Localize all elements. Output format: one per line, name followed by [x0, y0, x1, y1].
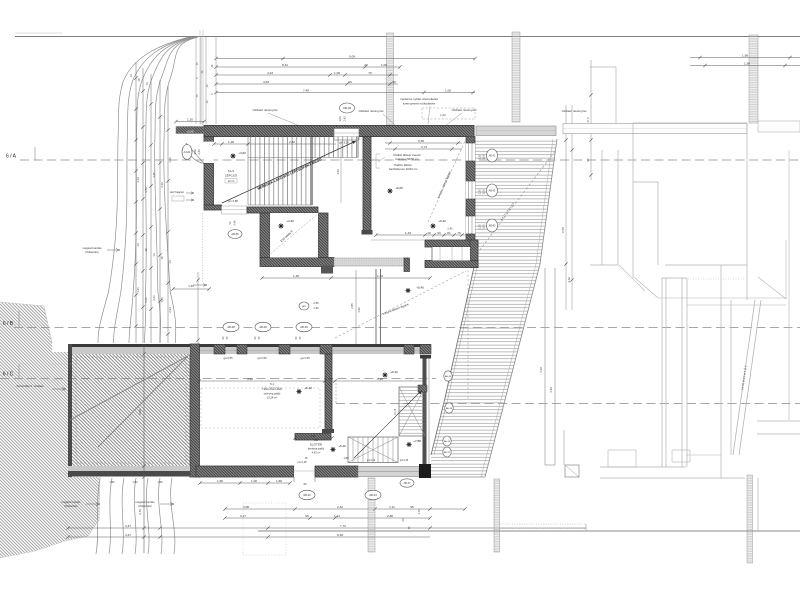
svg-text:4,22: 4,22: [247, 377, 253, 381]
svg-text:14: 14: [136, 243, 140, 247]
svg-text:1,90: 1,90: [357, 307, 361, 313]
svg-text:2,88: 2,88: [387, 514, 393, 518]
svg-text:1,00: 1,00: [381, 63, 387, 67]
svg-text:1,25: 1,25: [478, 154, 482, 160]
svg-text:kerámia padló: kerámia padló: [308, 447, 325, 451]
svg-text:1,11: 1,11: [389, 505, 395, 509]
svg-text:AJ-01: AJ-01: [184, 150, 191, 154]
svg-text:1,00: 1,00: [482, 189, 486, 195]
svg-text:1,20: 1,20: [187, 117, 193, 121]
svg-text:+5,88: +5,88: [186, 130, 194, 134]
svg-text:pm: pm: [302, 305, 306, 308]
svg-text:27,5: 27,5: [586, 117, 590, 123]
svg-text:AB-32: AB-32: [303, 493, 311, 497]
svg-text:4,47: 4,47: [125, 533, 131, 537]
svg-text:1,28: 1,28: [228, 140, 234, 144]
svg-text:70: 70: [328, 377, 332, 381]
svg-text:zárófödémen 20/20 cm: zárófödémen 20/20 cm: [389, 167, 418, 171]
svg-text:szennyezett működtetés: szennyezett működtetés: [403, 102, 436, 106]
svg-text:5,61: 5,61: [144, 297, 148, 303]
svg-text:1,00: 1,00: [482, 154, 486, 160]
svg-text:10: 10: [427, 231, 431, 235]
svg-text:4,20: 4,20: [336, 169, 340, 175]
svg-text:14: 14: [168, 260, 172, 264]
svg-text:+5,40: +5,40: [304, 386, 312, 390]
svg-text:1,50: 1,50: [157, 480, 163, 484]
svg-text:gw 0,55: gw 0,55: [300, 356, 310, 360]
svg-text:1,86: 1,86: [343, 456, 349, 460]
svg-text:1,41: 1,41: [136, 287, 140, 293]
svg-text:1,60: 1,60: [276, 479, 282, 483]
svg-text:AB-47: AB-47: [444, 451, 451, 454]
svg-text:HÁLÓSZOBA: HÁLÓSZOBA: [262, 386, 282, 391]
svg-text:2,85: 2,85: [313, 301, 319, 305]
svg-text:meglevő kerítés: meglevő kerítés: [83, 246, 103, 250]
svg-text:3,74: 3,74: [421, 145, 427, 149]
svg-text:AB-43: AB-43: [489, 225, 496, 228]
svg-text:Tervezőlap 2. szakasz: Tervezőlap 2. szakasz: [16, 384, 44, 388]
svg-text:20: 20: [364, 63, 368, 67]
svg-text:zöldtető növényzet: zöldtető növényzet: [358, 109, 383, 113]
svg-text:90: 90: [348, 80, 352, 84]
svg-text:AB-05: AB-05: [231, 232, 239, 236]
svg-text:9,36: 9,36: [337, 533, 343, 537]
svg-text:2,94: 2,94: [168, 307, 172, 313]
svg-text:AB-44: AB-44: [369, 493, 377, 497]
svg-text:1,45: 1,45: [152, 172, 156, 178]
svg-text:pm 0,30: pm 0,30: [400, 460, 409, 462]
svg-text:meglevő kerítés: meglevő kerítés: [62, 500, 82, 504]
svg-text:2,40: 2,40: [233, 220, 237, 226]
svg-text:1,25: 1,25: [478, 189, 482, 195]
svg-text:18: 18: [160, 256, 164, 260]
svg-text:AB-42: AB-42: [489, 190, 496, 193]
svg-text:8,31: 8,31: [282, 63, 288, 67]
svg-text:1,10: 1,10: [417, 509, 421, 515]
svg-text:AB-09: AB-09: [259, 325, 267, 329]
svg-text:3,35: 3,35: [418, 139, 424, 143]
svg-text:1,34: 1,34: [405, 231, 411, 235]
svg-text:1,00: 1,00: [445, 88, 451, 92]
svg-text:AB-46: AB-46: [444, 440, 451, 443]
svg-text:1,52: 1,52: [109, 480, 115, 484]
svg-text:+7,88: +7,88: [413, 439, 421, 443]
svg-text:70: 70: [368, 71, 372, 75]
svg-text:2,52: 2,52: [289, 140, 295, 144]
svg-text:pm 0,25: pm 0,25: [297, 461, 307, 464]
svg-text:93: 93: [437, 231, 441, 235]
svg-text:zöldtető növényzet: zöldtető növényzet: [451, 108, 476, 112]
svg-text:4,20: 4,20: [567, 277, 571, 283]
svg-text:6 / A: 6 / A: [6, 154, 17, 160]
svg-text:(Kőkerítés): (Kőkerítés): [64, 504, 77, 508]
svg-text:2,36: 2,36: [160, 182, 164, 188]
svg-text:4,43 m²: 4,43 m²: [312, 451, 321, 455]
svg-text:95: 95: [410, 505, 414, 509]
svg-text:AB-09: AB-09: [300, 325, 308, 329]
svg-text:AB-45: AB-45: [445, 375, 452, 378]
svg-text:+4,00: +4,00: [238, 151, 246, 155]
svg-text:14: 14: [145, 82, 149, 86]
svg-text:pm 0,63: pm 0,63: [367, 460, 376, 462]
svg-text:meglevő kerítés: meglevő kerítés: [136, 500, 156, 504]
svg-text:4,30: 4,30: [549, 387, 553, 393]
svg-text:14: 14: [129, 74, 133, 78]
svg-text:1,00: 1,00: [193, 149, 197, 155]
svg-text:+4,30: +4,30: [286, 219, 294, 223]
svg-text:1,02: 1,02: [440, 113, 446, 117]
svg-text:AB-46: AB-46: [446, 407, 453, 410]
svg-text:1,00: 1,00: [482, 224, 486, 230]
svg-text:pm 0,88: pm 0,88: [228, 199, 238, 203]
svg-text:2,85: 2,85: [350, 303, 354, 309]
svg-text:AB-47: AB-47: [404, 482, 412, 485]
svg-text:4,90: 4,90: [138, 409, 142, 415]
svg-text:76: 76: [457, 231, 461, 235]
svg-text:medence nyílás üzemeltetés: medence nyílás üzemeltetés: [400, 97, 439, 101]
svg-text:KL/1: KL/1: [228, 169, 235, 173]
svg-text:2,43: 2,43: [343, 116, 347, 122]
svg-text:1,00: 1,00: [338, 116, 342, 122]
svg-text:12 m²: 12 m²: [228, 179, 235, 183]
svg-text:4,23: 4,23: [267, 71, 273, 75]
svg-text:+6,05: +6,05: [395, 186, 403, 190]
svg-text:szőnyeg padló: szőnyeg padló: [264, 392, 281, 396]
svg-text:14: 14: [152, 253, 156, 257]
svg-text:1,20: 1,20: [188, 284, 194, 288]
svg-text:3,2: 3,2: [314, 438, 318, 442]
svg-text:4,20: 4,20: [539, 367, 543, 373]
svg-text:AB-41: AB-41: [489, 155, 496, 158]
svg-text:5,1: 5,1: [270, 382, 274, 386]
svg-text:ELŐTÉR: ELŐTÉR: [310, 442, 323, 447]
svg-text:18: 18: [144, 248, 148, 252]
svg-text:1,98: 1,98: [742, 53, 748, 57]
svg-text:3,61: 3,61: [152, 295, 156, 301]
svg-text:akt! hágcsó: akt! hágcsó: [170, 190, 184, 194]
svg-text:3,24: 3,24: [136, 177, 140, 183]
svg-text:1,60: 1,60: [217, 479, 223, 483]
svg-text:(Kőkerítés): (Kőkerítés): [138, 504, 151, 508]
svg-text:6 / B: 6 / B: [3, 321, 14, 327]
svg-text:1,25: 1,25: [478, 224, 482, 230]
svg-text:3,18: 3,18: [377, 377, 383, 381]
svg-text:7,72: 7,72: [340, 524, 346, 528]
svg-text:6 / C: 6 / C: [3, 372, 14, 378]
svg-text:LÉPCSŐ: LÉPCSŐ: [225, 173, 238, 178]
svg-text:95: 95: [305, 514, 309, 518]
svg-text:1,90: 1,90: [313, 306, 319, 310]
svg-text:1,06: 1,06: [160, 297, 164, 303]
svg-text:1,5: 1,5: [311, 434, 316, 438]
svg-text:9,09: 9,09: [349, 54, 355, 58]
svg-text:AB-08: AB-08: [227, 325, 235, 329]
svg-text:3,08: 3,08: [243, 505, 249, 509]
svg-text:(Kőkerítés): (Kőkerítés): [85, 250, 98, 254]
svg-text:+6,40: +6,40: [390, 370, 398, 374]
svg-text:1,92: 1,92: [132, 480, 138, 484]
svg-text:90: 90: [392, 80, 396, 84]
svg-text:1,00: 1,00: [334, 71, 340, 75]
svg-text:18: 18: [137, 78, 141, 82]
svg-text:4,47: 4,47: [125, 524, 131, 528]
svg-text:3,50: 3,50: [144, 187, 148, 193]
svg-text:+6,42: +6,42: [438, 219, 446, 223]
svg-text:AB-34: AB-34: [343, 106, 352, 110]
svg-text:zöldtető növényzet: zöldtető növényzet: [252, 108, 277, 112]
svg-text:17x18: 17x18: [395, 408, 397, 415]
svg-text:+5,40: +5,40: [416, 286, 424, 290]
svg-text:zöldtető növényzet: zöldtető növényzet: [561, 109, 586, 113]
svg-text:+5,40: +5,40: [338, 444, 346, 448]
svg-text:födémen 50/50 cm: födémen 50/50 cm: [395, 157, 419, 161]
svg-text:1,90: 1,90: [744, 61, 750, 65]
svg-text:81: 81: [447, 231, 451, 235]
svg-text:1,44: 1,44: [334, 514, 340, 518]
svg-text:gw 0,55: gw 0,55: [223, 356, 233, 360]
svg-text:gw 0,55: gw 0,55: [257, 356, 267, 360]
svg-text:19,24 m²: 19,24 m²: [267, 396, 277, 400]
svg-text:2,40: 2,40: [197, 149, 201, 155]
svg-text:3,70: 3,70: [138, 509, 142, 515]
svg-text:1,00: 1,00: [251, 479, 257, 483]
svg-text:4,64: 4,64: [263, 80, 269, 84]
svg-text:1,36: 1,36: [293, 274, 299, 278]
svg-text:2,42: 2,42: [337, 505, 343, 509]
svg-text:1,34: 1,34: [377, 274, 383, 278]
svg-text:8,50: 8,50: [561, 227, 565, 233]
svg-text:7,49: 7,49: [303, 88, 309, 92]
